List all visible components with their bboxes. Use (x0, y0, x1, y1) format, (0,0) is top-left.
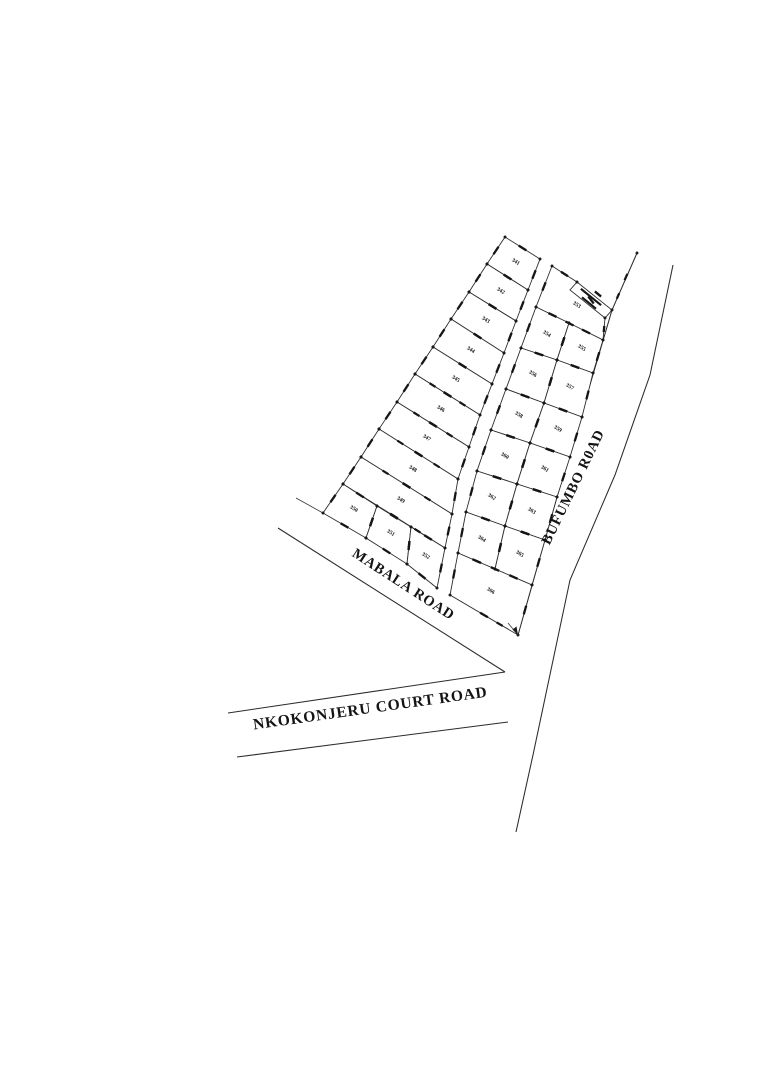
road-label-nkokonjeru: NKOKONJERU COURT ROAD (252, 684, 489, 734)
dimension-blob (624, 273, 629, 280)
plot-parcels (323, 237, 612, 635)
survey-plan-page: 3413423433443453463473483493503513523533… (0, 0, 763, 1080)
survey-plan-map: 3413423433443453463473483493503513523533… (0, 0, 763, 1080)
dimension-blob (616, 293, 620, 299)
boundary-extension-line (296, 498, 323, 513)
boundary-tick (635, 251, 639, 255)
